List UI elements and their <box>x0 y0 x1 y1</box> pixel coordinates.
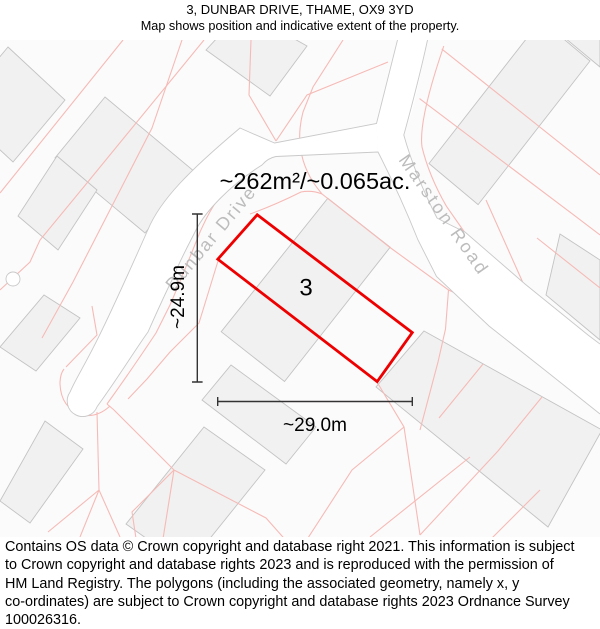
svg-text:3: 3 <box>299 275 312 302</box>
svg-text:~262m²/~0.065ac.: ~262m²/~0.065ac. <box>220 168 411 194</box>
svg-text:~29.0m: ~29.0m <box>283 415 347 436</box>
svg-text:~24.9m: ~24.9m <box>168 265 189 329</box>
